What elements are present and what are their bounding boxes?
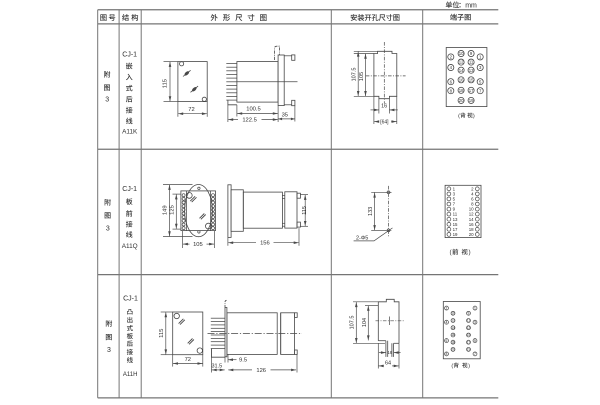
svg-text:1: 1 <box>474 306 476 310</box>
svg-text:12: 12 <box>459 60 464 65</box>
svg-text:125: 125 <box>170 205 176 215</box>
svg-text:A11K: A11K <box>122 128 138 135</box>
svg-text:CJ-1: CJ-1 <box>122 186 137 193</box>
svg-text:35: 35 <box>282 112 288 118</box>
svg-text:126: 126 <box>256 368 266 374</box>
svg-text:3: 3 <box>107 347 111 354</box>
svg-text:): ) <box>469 249 471 256</box>
svg-text:): ) <box>468 363 470 369</box>
svg-text:72: 72 <box>188 107 194 113</box>
svg-text:15: 15 <box>467 333 471 337</box>
svg-text:A11H: A11H <box>123 372 138 378</box>
svg-text:100.5: 100.5 <box>246 106 261 112</box>
svg-text:14: 14 <box>451 326 455 330</box>
svg-text:CJ-1: CJ-1 <box>123 296 138 303</box>
svg-text:19: 19 <box>453 232 458 237</box>
svg-text:3: 3 <box>106 225 110 232</box>
svg-text:107.5: 107.5 <box>350 316 356 330</box>
svg-text:13: 13 <box>467 326 471 330</box>
svg-text:115: 115 <box>163 79 169 88</box>
svg-text:16: 16 <box>381 103 387 109</box>
svg-text:16: 16 <box>387 350 392 355</box>
svg-text:10: 10 <box>459 51 464 56</box>
svg-text:9: 9 <box>468 312 470 316</box>
svg-text:122.5: 122.5 <box>242 118 257 124</box>
svg-text:19: 19 <box>469 98 474 103</box>
svg-text:115: 115 <box>302 206 308 215</box>
svg-text:105: 105 <box>359 72 365 81</box>
svg-text:2: 2 <box>446 306 448 310</box>
svg-text:72: 72 <box>185 357 191 363</box>
svg-text:3: 3 <box>474 320 476 324</box>
svg-text:[64]: [64] <box>380 120 389 126</box>
svg-text:105: 105 <box>193 242 203 248</box>
svg-text:mm: mm <box>465 2 477 9</box>
svg-text:20: 20 <box>459 98 464 103</box>
svg-text:6: 6 <box>446 339 448 343</box>
svg-text:11: 11 <box>467 319 471 323</box>
svg-text:19: 19 <box>467 348 471 352</box>
svg-text:15: 15 <box>469 77 474 82</box>
svg-text:149: 149 <box>162 205 168 215</box>
svg-text:20: 20 <box>451 348 455 352</box>
svg-text:20: 20 <box>469 232 474 237</box>
svg-text:3: 3 <box>105 97 109 104</box>
svg-text:13: 13 <box>469 68 474 73</box>
svg-text:14: 14 <box>459 68 464 73</box>
svg-text:8: 8 <box>446 352 448 356</box>
svg-text:156: 156 <box>260 241 270 247</box>
svg-text:2-Φ5: 2-Φ5 <box>356 235 368 241</box>
svg-text:9.5: 9.5 <box>239 358 247 364</box>
svg-text:107.5: 107.5 <box>351 68 357 82</box>
svg-text:10: 10 <box>451 312 455 316</box>
svg-text:16: 16 <box>459 77 464 82</box>
svg-text:11: 11 <box>469 60 474 65</box>
svg-text:CJ-1: CJ-1 <box>122 51 137 58</box>
svg-text:7: 7 <box>474 352 476 356</box>
svg-text:(: ( <box>451 363 453 369</box>
svg-text:104: 104 <box>362 318 368 327</box>
svg-text:115: 115 <box>159 329 165 338</box>
svg-text:17: 17 <box>467 340 471 344</box>
svg-text:18: 18 <box>451 340 455 344</box>
svg-text:133: 133 <box>368 207 374 216</box>
svg-text:(: ( <box>458 113 460 119</box>
svg-text:16: 16 <box>451 333 455 337</box>
svg-text:5: 5 <box>474 339 476 343</box>
svg-text:): ) <box>473 113 475 119</box>
svg-text:17: 17 <box>469 88 474 93</box>
svg-text:12: 12 <box>451 319 455 323</box>
svg-text:18: 18 <box>459 88 464 93</box>
svg-text:A11Q: A11Q <box>122 243 138 250</box>
svg-text:64: 64 <box>385 360 391 366</box>
svg-text:31.5: 31.5 <box>211 363 222 369</box>
svg-text:4: 4 <box>446 320 448 324</box>
